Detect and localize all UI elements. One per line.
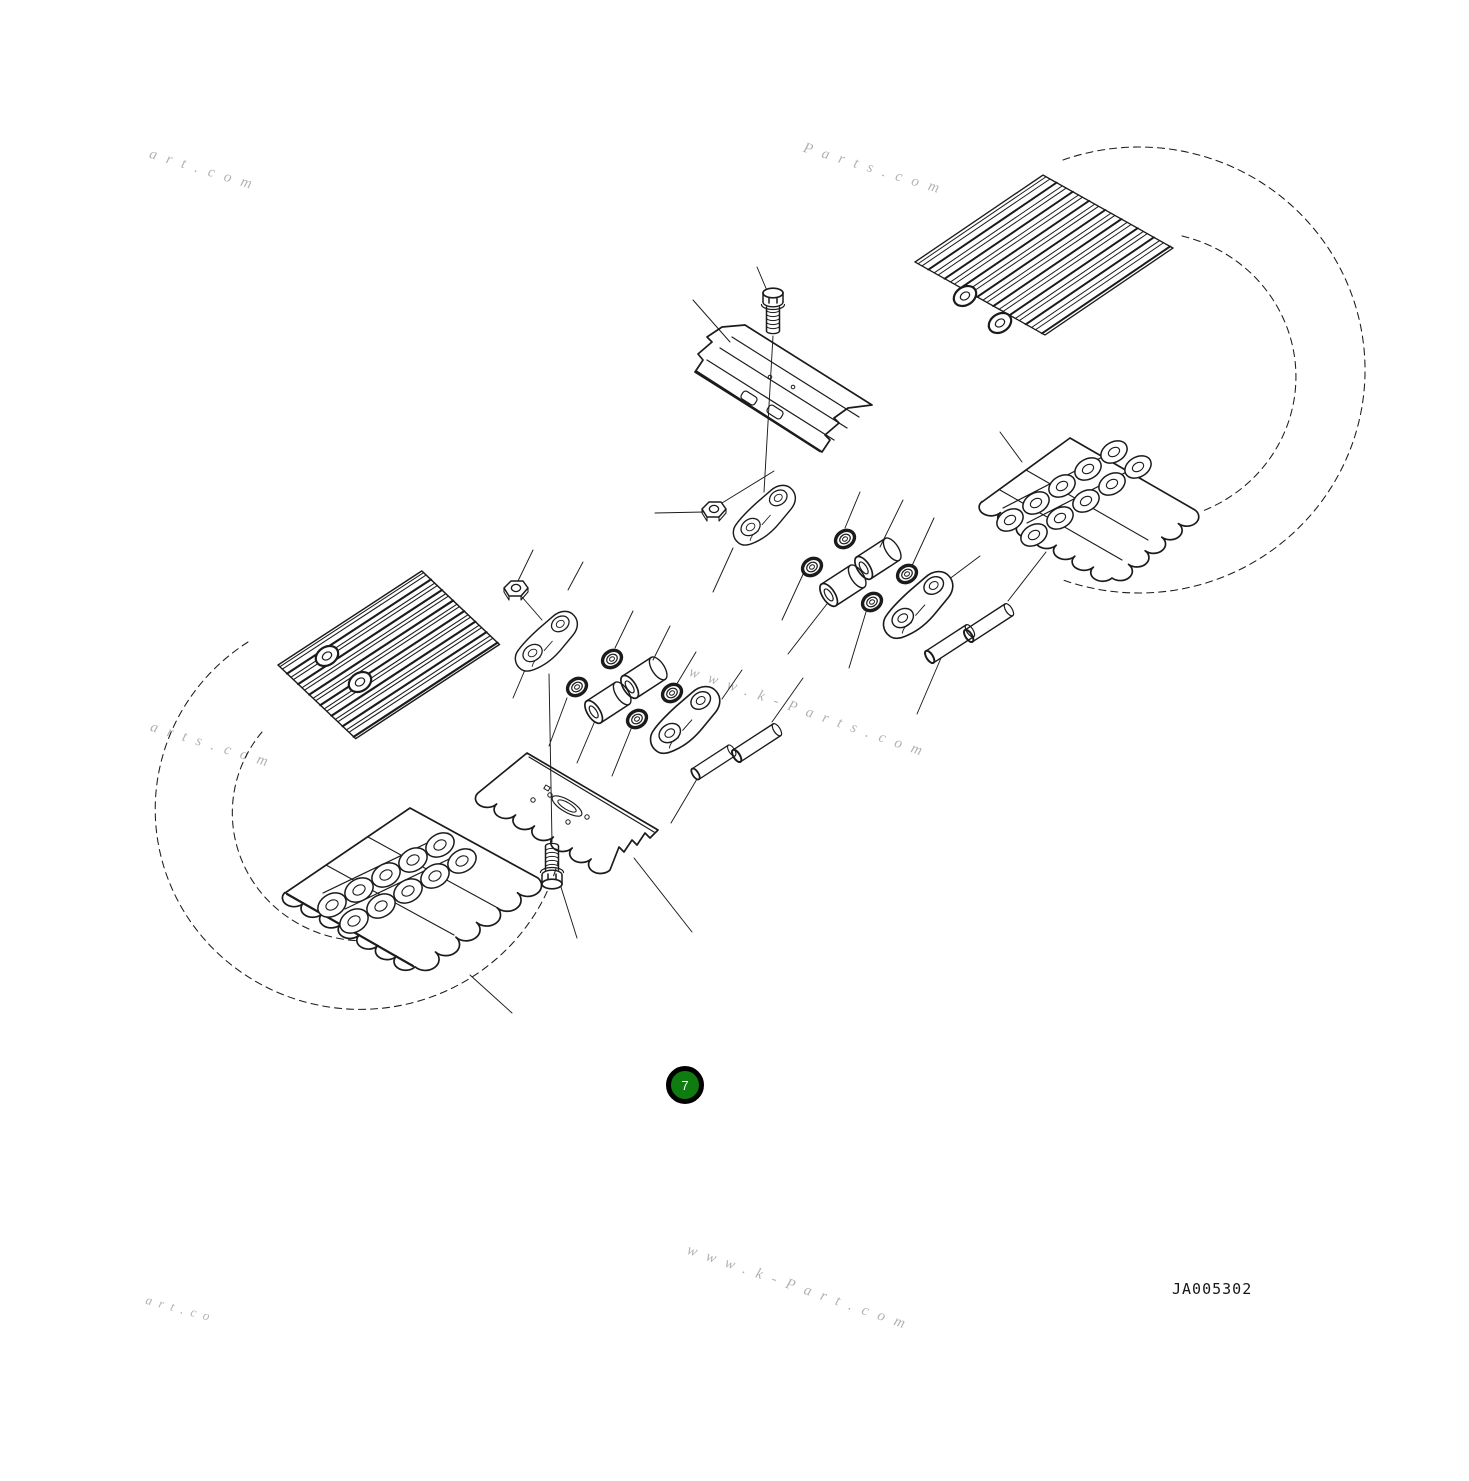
seal-ring-2 (894, 562, 919, 586)
seal-ring-8 (624, 707, 649, 731)
track-link-rear-upper (872, 566, 964, 645)
exploded-parts-diagram (0, 0, 1469, 1481)
seal-ring-4 (859, 590, 884, 614)
seal-ring-3 (799, 555, 824, 579)
diagram-page: art.com Parts.com www.k-Parts.com arts.c… (0, 0, 1469, 1481)
track-link-shoe-row-left (282, 808, 541, 970)
track-shoe-plate-upper (695, 325, 872, 452)
callout-balloon-7[interactable]: 7 (666, 1066, 704, 1104)
grouser-shoe-stack-right (915, 175, 1173, 335)
figure-code: JA005302 (1172, 1280, 1252, 1298)
track-link-shoe-row-right (979, 436, 1199, 581)
track-shoe-plate-lower (475, 753, 658, 873)
track-link-front-lower (505, 606, 587, 677)
track-nut-upper (702, 502, 726, 521)
grouser-shoe-stack-left (278, 571, 499, 739)
track-bolt-upper (762, 288, 785, 333)
track-pin-2 (923, 623, 976, 664)
seal-ring-1 (832, 527, 857, 551)
track-nut-lower (504, 581, 528, 600)
track-pin-4 (690, 744, 738, 781)
exploded-link-chain-lower (504, 581, 783, 781)
seal-ring-5 (599, 647, 624, 671)
seal-ring-7 (564, 675, 589, 699)
track-pin-1 (962, 602, 1015, 643)
track-link-rear-lower (639, 681, 731, 760)
track-pin-3 (730, 722, 783, 763)
